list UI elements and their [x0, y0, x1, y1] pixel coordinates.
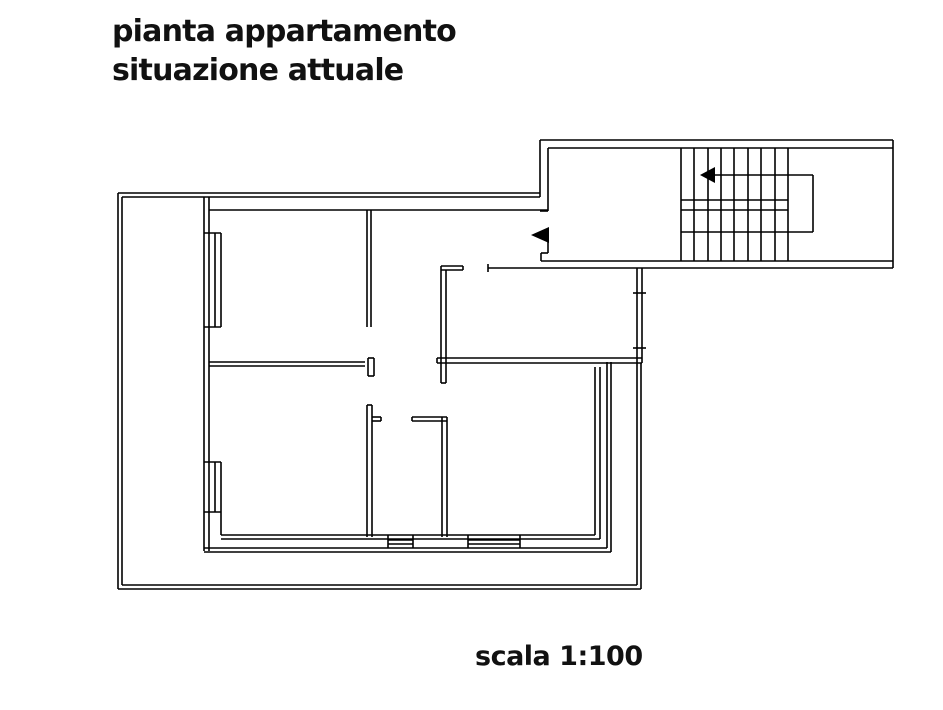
entrance-direction-arrow — [531, 227, 549, 243]
drawing-title-line-1: pianta appartamento — [112, 12, 456, 51]
drawing-sheet: pianta appartamento situazione attuale s… — [0, 0, 943, 710]
drawing-title-line-2: situazione attuale — [112, 51, 456, 90]
drawing-title: pianta appartamento situazione attuale — [112, 12, 456, 90]
floor-plan-drawing — [0, 0, 943, 710]
scale-label: scala 1:100 — [475, 641, 643, 672]
